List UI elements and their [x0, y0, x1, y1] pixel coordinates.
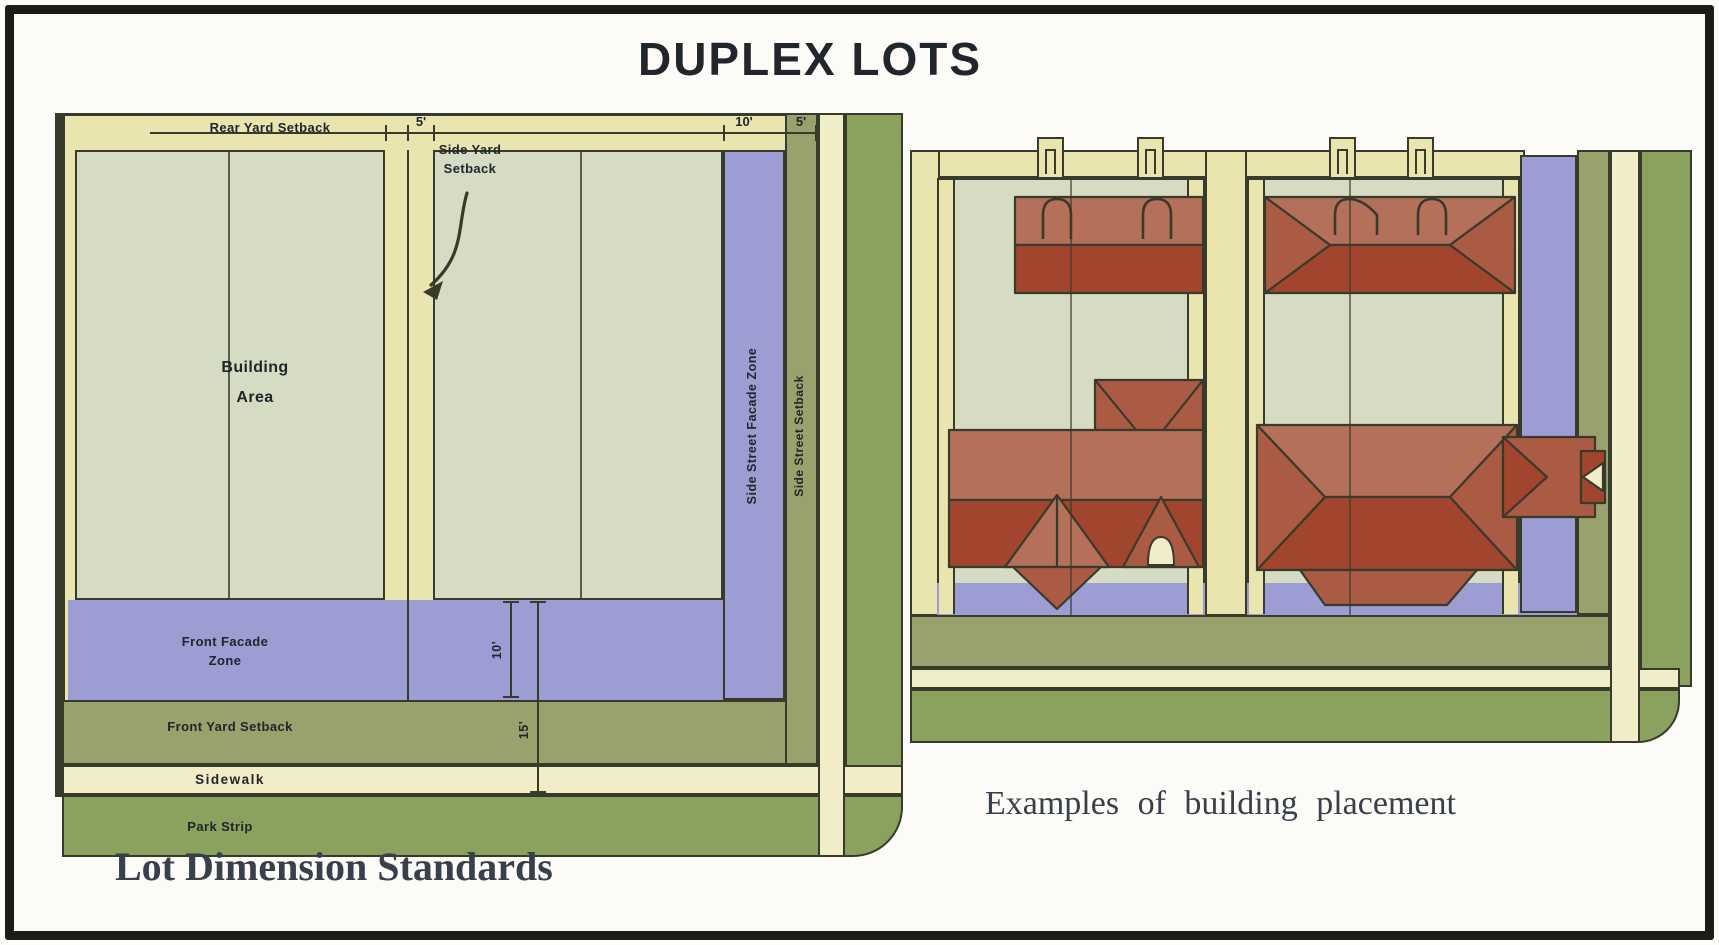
roof-plans	[905, 135, 1705, 835]
dim-side-yard: 5'	[398, 114, 444, 129]
side-street-sidewalk	[818, 113, 845, 857]
side-street-park-strip	[845, 113, 903, 795]
lot-dimension-diagram: Rear Yard Setback 5' Side Yard Setback 1…	[55, 105, 910, 905]
front-facade-zone-label: Front Facade Zone	[135, 633, 315, 671]
dim-setback-width: 5'	[781, 114, 821, 129]
placement-caption: Examples of building placement	[985, 785, 1645, 823]
side-yard-setback-label: Side Yard Setback	[400, 141, 540, 179]
dim-front-depth: 15'	[517, 700, 533, 760]
dimension-line	[537, 602, 539, 793]
duplex-lots-page: DUPLEX LOTS	[0, 0, 1719, 945]
lot1-garage-roof	[1015, 197, 1203, 293]
dimension-tick	[503, 696, 519, 698]
building-area-line1: Building	[170, 353, 340, 383]
setback-arrow-icon	[385, 185, 515, 310]
unit-line	[1070, 180, 1072, 615]
unit-line	[580, 150, 582, 600]
lot2-garage-roof	[1265, 197, 1515, 293]
park-strip-label: Park Strip	[130, 818, 310, 837]
building-placement-diagram	[905, 135, 1705, 835]
front-facade-zone-line1: Front Facade	[135, 633, 315, 652]
dim-facade-depth: 10'	[490, 620, 506, 680]
building-area-label: Building Area	[170, 353, 340, 414]
building-area-line2: Area	[170, 383, 340, 413]
sidewalk-label: Sidewalk	[140, 770, 320, 790]
dimension-tick	[503, 601, 519, 603]
side-street-facade-zone-label: Side Street Facade Zone	[745, 326, 763, 526]
page-title: DUPLEX LOTS	[560, 32, 1060, 86]
dimension-tick	[530, 791, 546, 793]
dimension-tick	[530, 601, 546, 603]
lot2-house-roof	[1257, 425, 1605, 605]
dim-facade-zone-width: 10'	[719, 114, 769, 129]
rear-yard-setback-label: Rear Yard Setback	[145, 119, 395, 138]
front-yard-setback-label: Front Yard Setback	[115, 718, 345, 737]
lot-dimension-caption: Lot Dimension Standards	[115, 843, 735, 890]
lot1-house-roof	[949, 380, 1203, 609]
side-yard-setback-line2: Setback	[400, 160, 540, 179]
unit-line	[1349, 180, 1351, 615]
dimension-line	[510, 602, 512, 698]
side-street-setback-label: Side Street Setback	[792, 336, 810, 536]
block-left-edge	[55, 113, 62, 797]
front-facade-zone-line2: Zone	[135, 652, 315, 671]
side-yard-setback-line1: Side Yard	[400, 141, 540, 160]
